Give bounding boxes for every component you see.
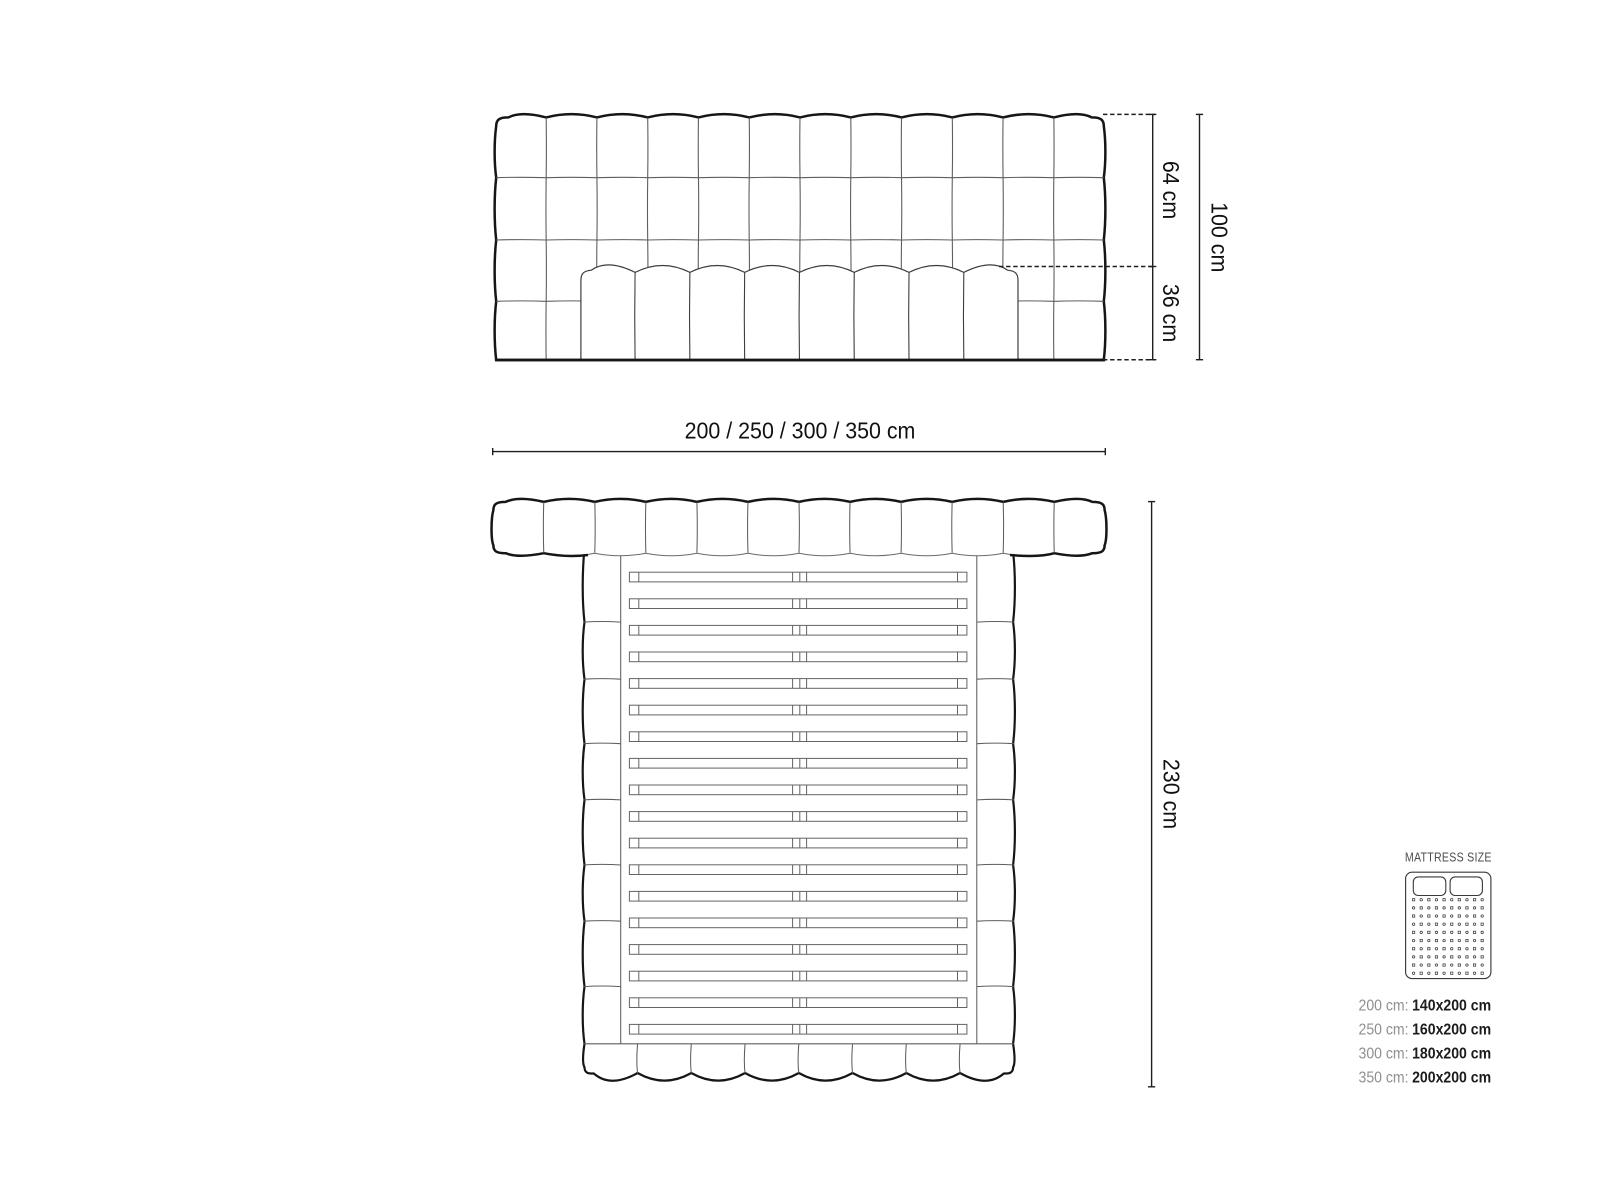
svg-text:200 cm:140x200 cm: 200 cm:140x200 cm bbox=[1359, 997, 1492, 1015]
svg-text:100 cm: 100 cm bbox=[1206, 202, 1232, 272]
svg-text:230 cm: 230 cm bbox=[1158, 759, 1184, 829]
svg-text:300 cm:180x200 cm: 300 cm:180x200 cm bbox=[1359, 1045, 1492, 1063]
svg-text:36 cm: 36 cm bbox=[1158, 284, 1184, 342]
svg-text:200 / 250 / 300 / 350 cm: 200 / 250 / 300 / 350 cm bbox=[685, 418, 916, 444]
svg-text:MATTRESS SIZE: MATTRESS SIZE bbox=[1405, 849, 1492, 864]
svg-text:250 cm:160x200 cm: 250 cm:160x200 cm bbox=[1359, 1021, 1492, 1039]
svg-text:64 cm: 64 cm bbox=[1158, 161, 1184, 219]
svg-text:350 cm:200x200 cm: 350 cm:200x200 cm bbox=[1359, 1069, 1492, 1087]
